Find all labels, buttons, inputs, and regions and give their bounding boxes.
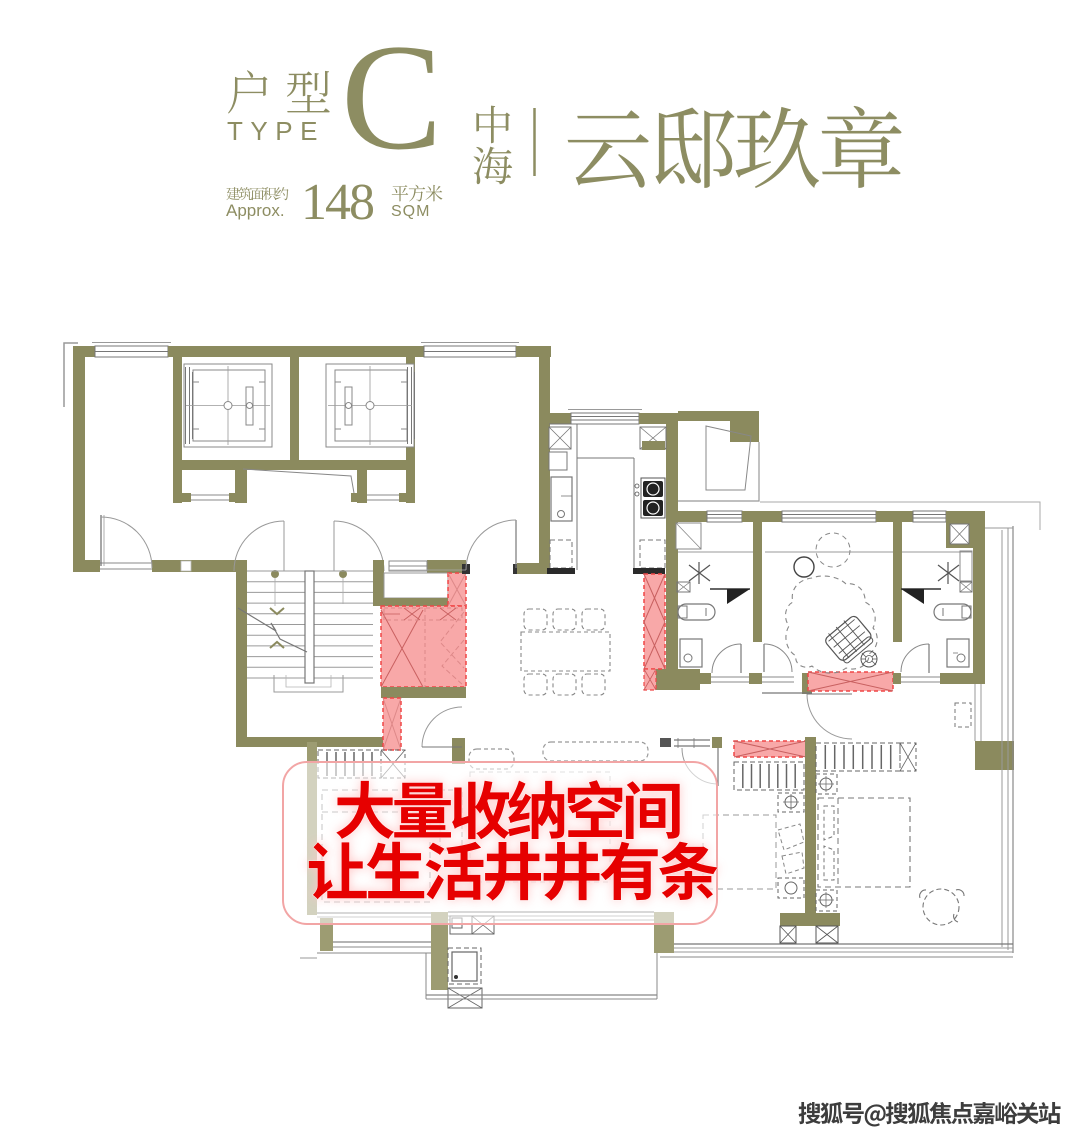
svg-text:SQM: SQM (391, 203, 430, 220)
svg-text:Approx.: Approx. (226, 201, 285, 220)
svg-text:TYPE: TYPE (227, 116, 325, 146)
svg-text:148: 148 (301, 174, 374, 231)
svg-text:C: C (341, 13, 442, 181)
